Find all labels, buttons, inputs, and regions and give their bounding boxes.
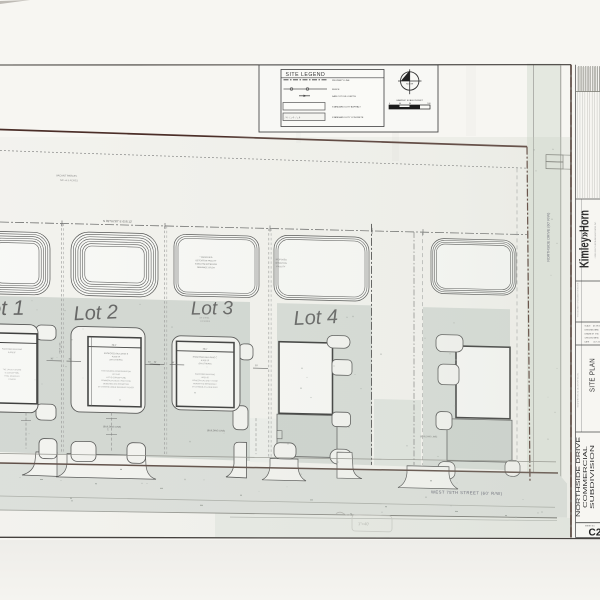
svg-text:AS SHOWN: AS SHOWN <box>593 325 600 328</box>
svg-text:STANDARD DUTY ASPHALT: STANDARD DUTY ASPHALT <box>332 105 361 108</box>
svg-text:SUBDIVISION: SUBDIVISION <box>590 445 596 509</box>
svg-text:GRAPHIC SCALE IN FEET: GRAPHIC SCALE IN FEET <box>396 99 423 102</box>
svg-text:DATE: DATE <box>585 341 590 344</box>
svg-text:© 2015 KIMLEY-HORN AND ASSOCIA: © 2015 KIMLEY-HORN AND ASSOCIATES, INC. <box>594 221 597 258</box>
svg-text:JULY 2015: JULY 2015 <box>593 342 600 344</box>
svg-text:NORTH: NORTH <box>406 83 414 85</box>
svg-text:⁄ 4 · ⁄ ▵ 4 · ⁄ ▵ 4: ⁄ 4 · ⁄ ▵ 4 · ⁄ ▵ 4 <box>284 116 301 119</box>
svg-text:COMMERCIAL: COMMERCIAL <box>583 446 589 508</box>
svg-text:NORTHSIDE DRIVE: NORTHSIDE DRIVE <box>576 436 582 517</box>
svg-text:DRAWN BY: DRAWN BY <box>585 333 595 336</box>
svg-text:PROPERTY LINE: PROPERTY LINE <box>332 80 350 82</box>
svg-text:SITE LEGEND: SITE LEGEND <box>286 72 326 78</box>
svg-text:SCALE: SCALE <box>585 325 592 328</box>
svg-text:SAW CUT FULL DEPTH: SAW CUT FULL DEPTH <box>332 95 356 98</box>
svg-text:STANDARD DUTY CONCRETE: STANDARD DUTY CONCRETE <box>332 116 364 119</box>
svg-text:Kimley»Horn: Kimley»Horn <box>577 210 592 268</box>
svg-text:SITE PLAN: SITE PLAN <box>588 358 597 392</box>
svg-text:C2.0: C2.0 <box>589 528 600 539</box>
svg-text:FENCE: FENCE <box>332 89 340 91</box>
